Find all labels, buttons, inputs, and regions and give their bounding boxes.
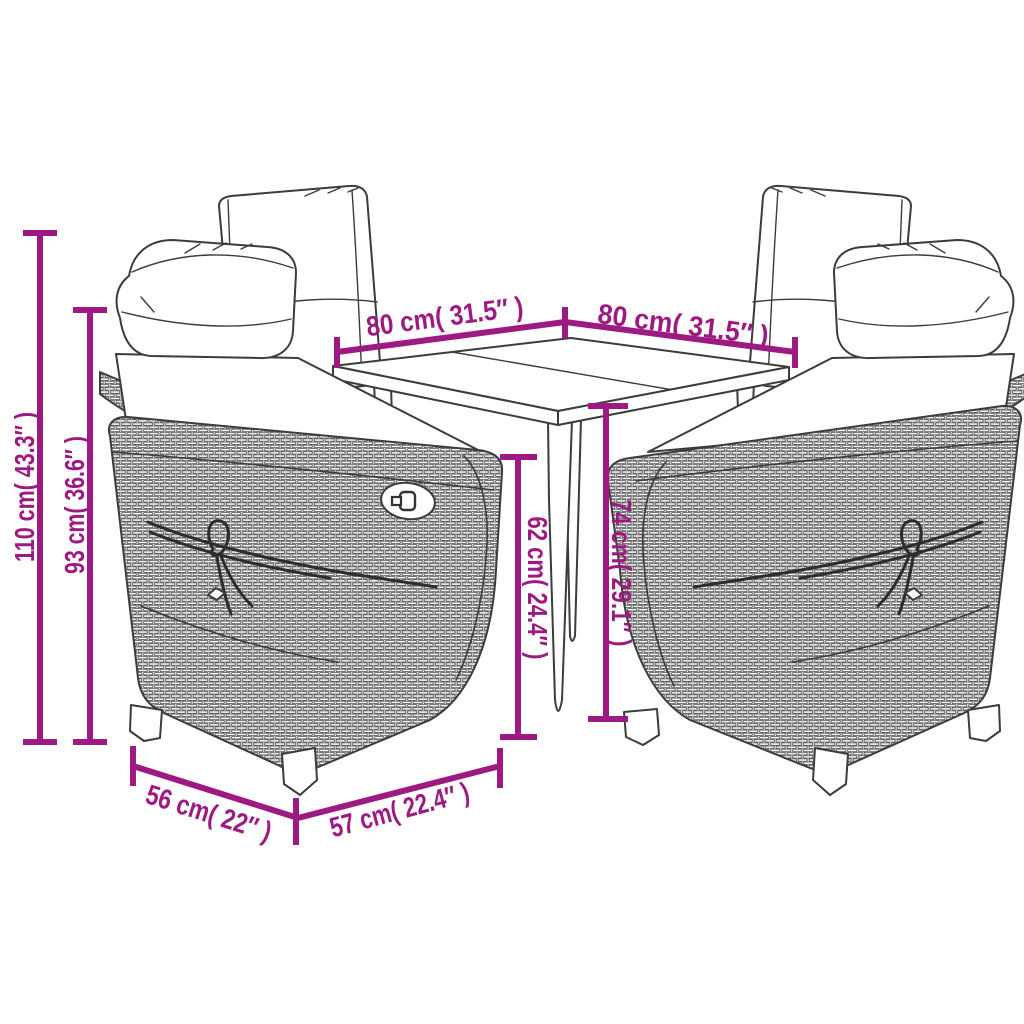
dimension-label-74: 74 cm( 29.1″ ) [606, 500, 637, 647]
wicker-back-panel [608, 406, 1021, 772]
dimension-chair-height: 110 cm( 43.3″ ) [9, 233, 57, 742]
dimension-under-table-height: 62 cm( 24.4″ ) [500, 457, 553, 737]
chair-foot [130, 705, 162, 741]
dimension-label-110: 110 cm( 43.3″ ) [9, 412, 40, 562]
dimension-label-80-right: 80 cm( 31.5″ ) [596, 298, 771, 351]
dimension-label-80-left: 80 cm( 31.5″ ) [364, 291, 525, 342]
chair-foot [624, 709, 659, 745]
dimension-diagram: 110 cm( 43.3″ ) 93 cm( 36.6″ ) 80 cm( 31… [0, 0, 1024, 1024]
diagram-canvas: 110 cm( 43.3″ ) 93 cm( 36.6″ ) 80 cm( 31… [0, 0, 1024, 1024]
chair-foot [282, 748, 317, 795]
dimension-label-93: 93 cm( 36.6″ ) [59, 436, 90, 574]
chair-foot [968, 705, 1000, 741]
dimension-label-57: 57 cm( 22.4″ ) [326, 776, 472, 843]
chair-foot [813, 748, 848, 795]
dimension-label-62: 62 cm( 24.4″ ) [522, 517, 553, 660]
tabletop [333, 338, 789, 411]
dimension-table-height: 74 cm( 29.1″ ) [588, 406, 637, 719]
